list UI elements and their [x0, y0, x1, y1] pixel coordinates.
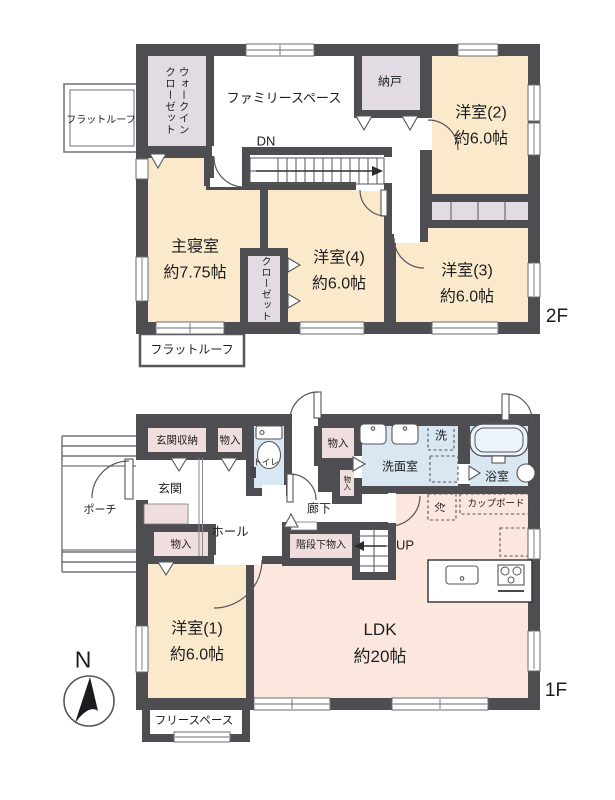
- floor-1f: [62, 392, 540, 742]
- label-free-space: フリースペース: [155, 712, 234, 730]
- north-arrow-icon: [64, 676, 114, 726]
- label-walk-in-closet: ウォークイン クローゼット: [162, 67, 189, 136]
- label-stairs-up: UP: [396, 536, 414, 557]
- entrance-step: [144, 504, 188, 524]
- label-cupboard: カップボード: [467, 496, 524, 511]
- label-washer: 洗: [435, 426, 447, 445]
- label-family-space: ファミリースペース: [227, 89, 342, 110]
- label-storage-top: 物入: [220, 433, 241, 450]
- label-entrance: 玄関: [158, 479, 182, 498]
- label-stairs-down: DN: [257, 132, 276, 153]
- kitchen-counter: [428, 560, 532, 602]
- label-fridge: 冷: [433, 502, 451, 513]
- label-toilet: トイレ: [253, 456, 279, 470]
- label-porch: ポーチ: [84, 502, 117, 520]
- label-flat-roof-bottom: フラットルーフ: [150, 340, 233, 359]
- label-entrance-storage: 玄関収納: [156, 433, 198, 450]
- label-master: 主寝室 約7.75帖: [163, 234, 226, 285]
- label-storage-bottom: 物入: [171, 537, 192, 554]
- label-room1-name: 洋室(1): [170, 616, 224, 642]
- closet-strip-room3: [428, 198, 532, 224]
- label-room2-size: 約6.0帖: [454, 126, 508, 152]
- label-room3-name: 洋室(3): [440, 258, 494, 284]
- label-corridor: 廊下: [307, 499, 331, 518]
- label-north: N: [75, 642, 92, 679]
- label-understairs-storage: 階段下物入: [296, 538, 346, 554]
- label-room3-size: 約6.0帖: [440, 284, 494, 310]
- label-ldk-size: 約20帖: [354, 643, 407, 670]
- label-room2: 洋室(2) 約6.0帖: [454, 100, 508, 151]
- label-room4-size: 約6.0帖: [312, 271, 366, 297]
- label-wic-line1: ウォークイン: [176, 67, 190, 136]
- floor-plan: フラットルーフ ウォークイン クローゼット ファミリースペース 納戸 DN 洋室…: [0, 0, 615, 800]
- label-storage-small: 物入: [343, 476, 351, 491]
- label-ldk-name: LDK: [354, 616, 407, 643]
- label-room1: 洋室(1) 約6.0帖: [170, 616, 224, 667]
- label-ldk: LDK 約20帖: [354, 616, 407, 670]
- label-room4: 洋室(4) 約6.0帖: [312, 245, 366, 296]
- label-closet-2f: クローゼット: [259, 256, 269, 322]
- label-floor-2f: 2F: [546, 302, 568, 332]
- label-room2-name: 洋室(2): [454, 100, 508, 126]
- label-master-name: 主寝室: [163, 234, 226, 260]
- label-floor-1f: 1F: [545, 676, 567, 706]
- label-room4-name: 洋室(4): [312, 245, 366, 271]
- label-room1-size: 約6.0帖: [170, 642, 224, 668]
- label-master-size: 約7.75帖: [163, 260, 226, 286]
- label-flat-roof-left: フラットルーフ: [66, 113, 135, 129]
- label-storage-mid: 物入: [328, 436, 349, 453]
- label-storeroom: 納戸: [378, 72, 402, 91]
- label-wic-line2: クローゼット: [162, 67, 176, 136]
- label-room3: 洋室(3) 約6.0帖: [440, 258, 494, 309]
- label-hall: ホール: [211, 522, 249, 542]
- label-bathroom: 浴室: [485, 467, 509, 486]
- label-washroom: 洗面室: [382, 457, 418, 476]
